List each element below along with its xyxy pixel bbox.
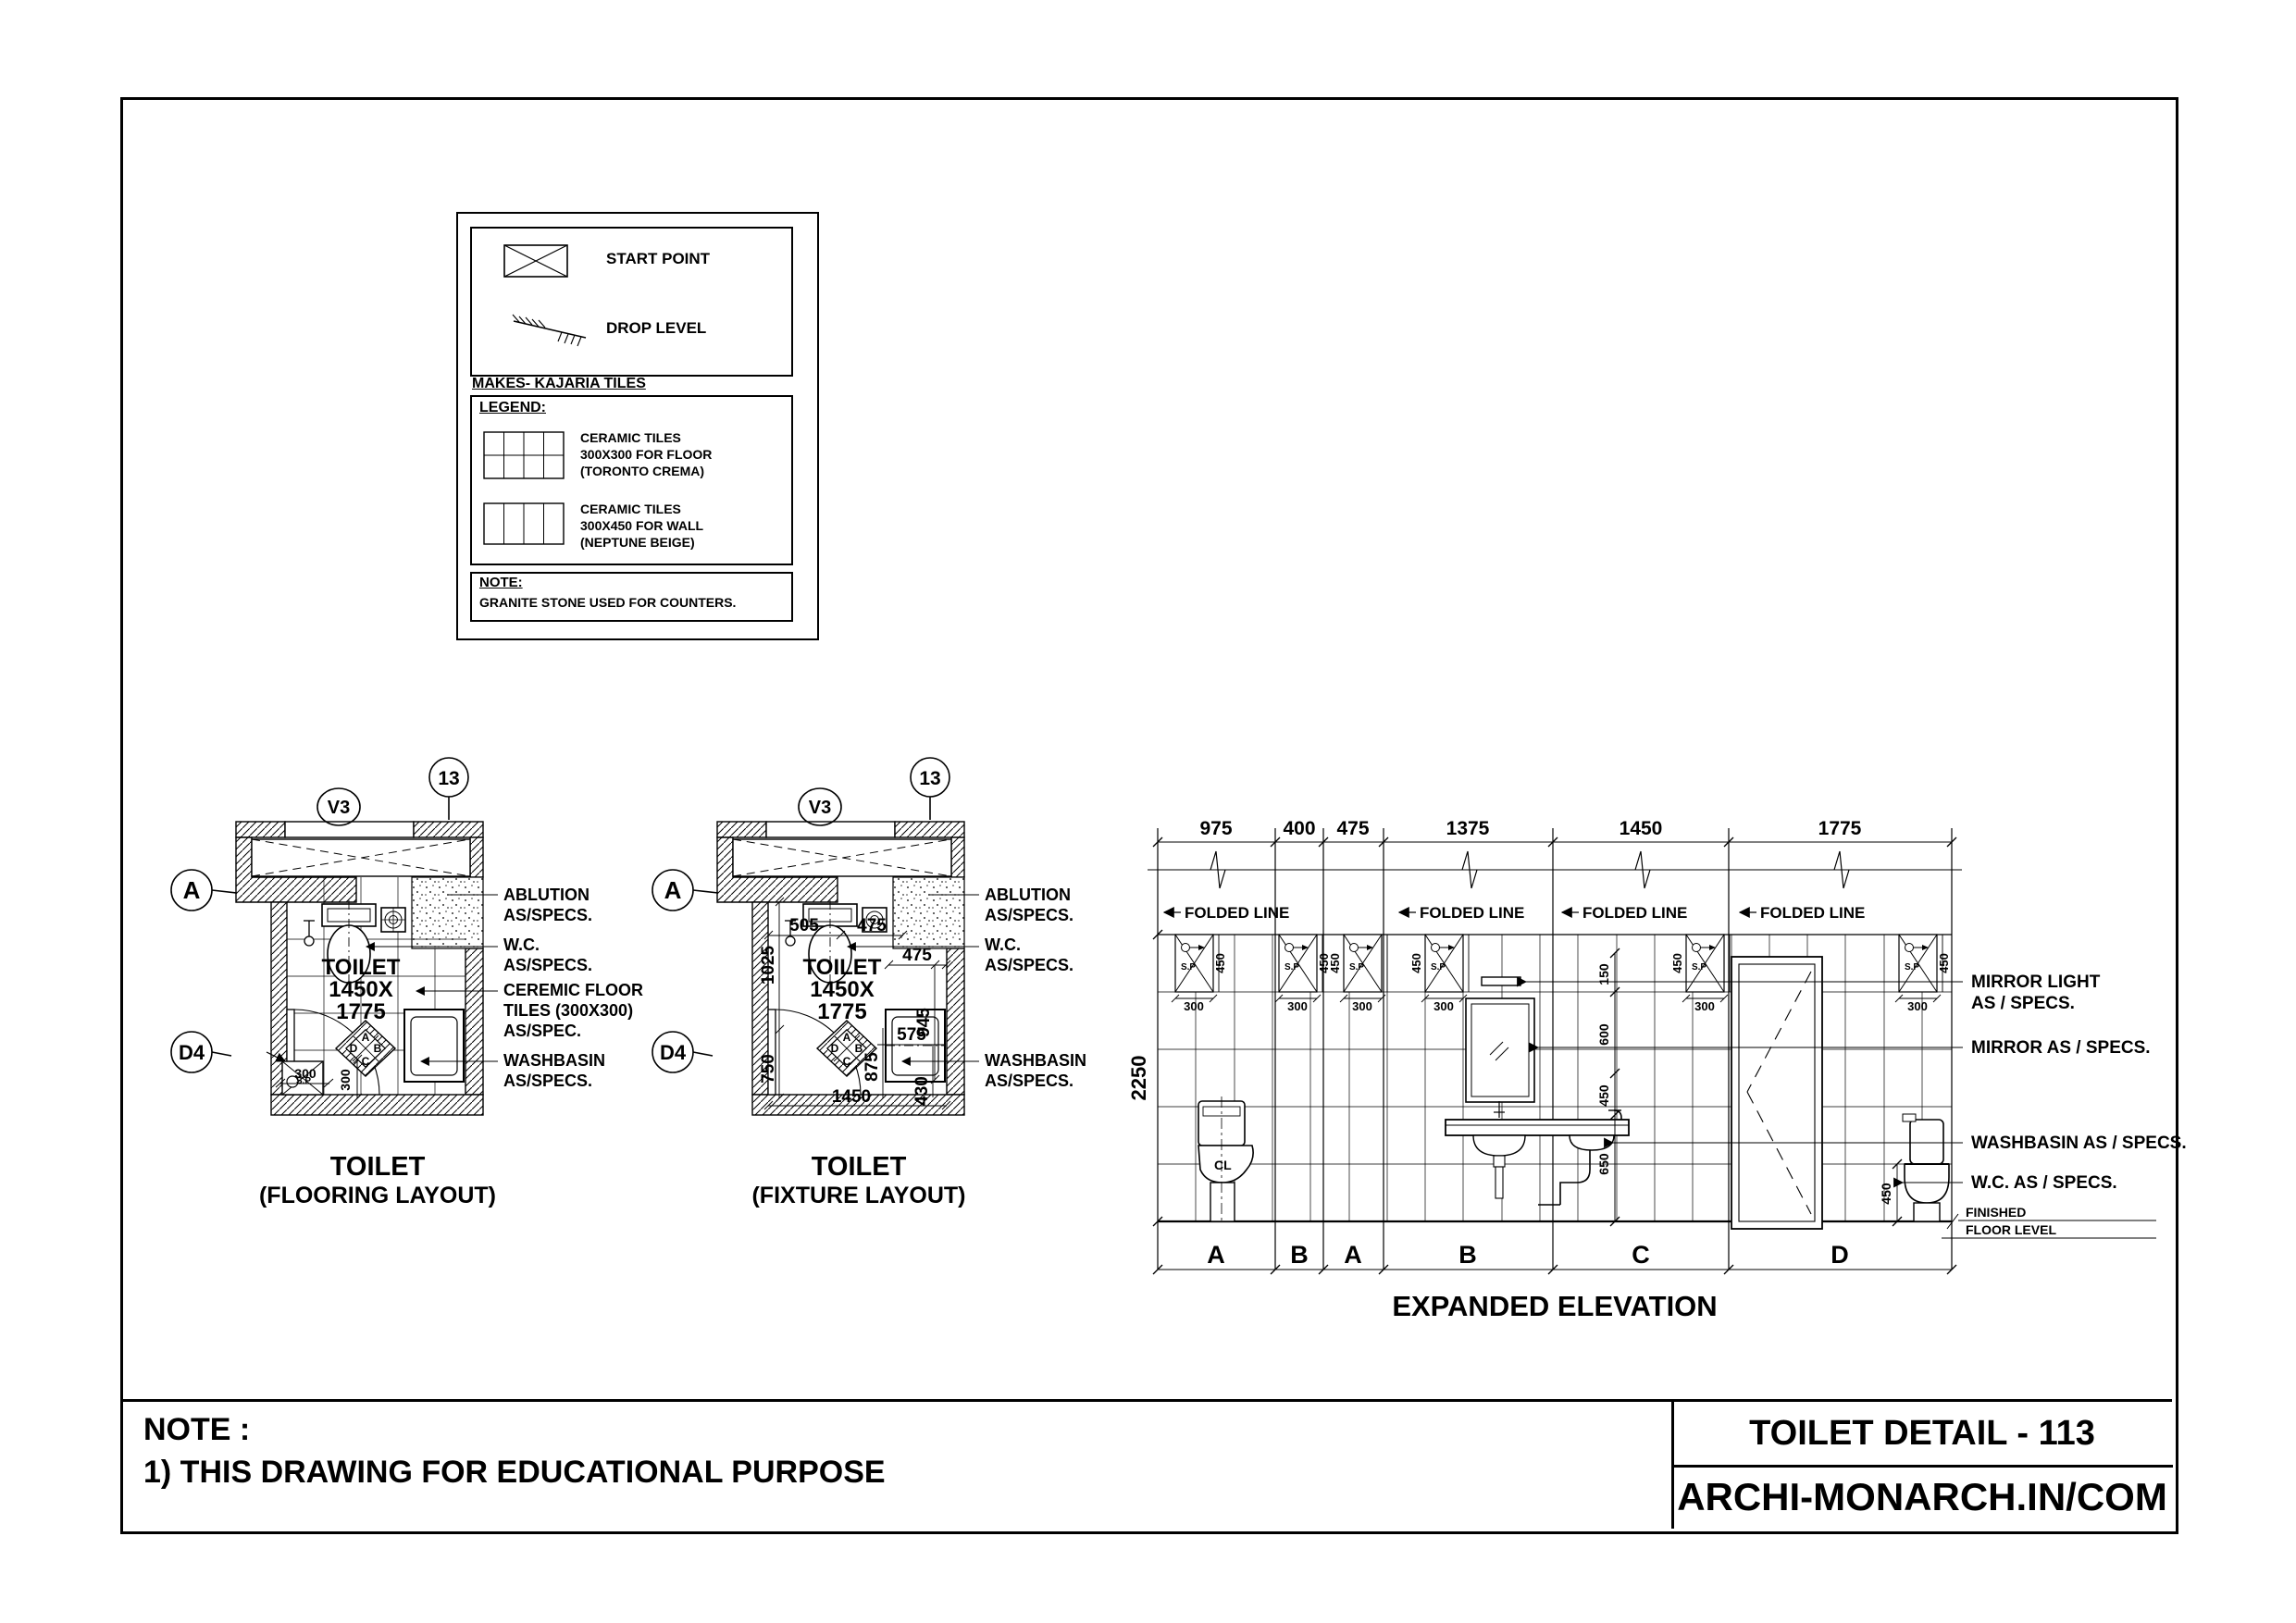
plan1-ablution-area <box>412 877 483 948</box>
sp-label-6: S.P <box>1905 962 1919 973</box>
sp-label-2: S.P <box>1285 962 1299 973</box>
elev-rdim-450: 450 <box>1596 1084 1611 1107</box>
wall-tile-text: CERAMIC TILES 300X450 FOR WALL (NEPTUNE … <box>580 501 703 551</box>
plan1-slab-over <box>252 839 470 876</box>
elev-lbl-wc: W.C. AS / SPECS. <box>1971 1173 2117 1193</box>
floor-tile-line2: 300X300 FOR FLOOR <box>580 446 712 463</box>
elev-lbl-mirror: MIRROR AS / SPECS. <box>1971 1038 2151 1058</box>
plan2-room-line1: TOILET <box>803 955 882 980</box>
plan2-marker-d4: D4 <box>660 1041 687 1064</box>
plan2-room-line2: 1450X <box>810 977 874 1002</box>
plan2-dim-1025: 1025 <box>759 945 778 985</box>
start-point-icon <box>503 243 571 280</box>
elev-wc-front <box>1903 1114 1949 1221</box>
folded-line-4: FOLDED LINE <box>1760 904 1865 922</box>
elev-lbl-washbasin: WASHBASIN AS / SPECS. <box>1971 1134 2187 1153</box>
sp-450-5: 450 <box>1670 953 1684 973</box>
plan1-room-line1: TOILET <box>322 955 401 980</box>
sp-450-1: 450 <box>1213 953 1227 973</box>
plan2-title-line1: TOILET <box>812 1152 907 1182</box>
plan1-lbl-ablution2: AS/SPECS. <box>503 906 592 924</box>
compass-c: C <box>362 1055 370 1068</box>
note-label: NOTE : <box>143 1412 250 1448</box>
plan1-marker-d4: D4 <box>179 1041 205 1064</box>
plan1-lbl-wc2: AS/SPECS. <box>503 956 592 974</box>
wall-tile-line2: 300X450 FOR WALL <box>580 517 703 534</box>
elev-boundaries <box>1158 828 1952 1270</box>
elev-mirror <box>1466 998 1534 1102</box>
wall-tile-icon <box>483 502 566 549</box>
plan2-marker-v3: V3 <box>809 798 831 818</box>
compass-c: C <box>843 1055 851 1068</box>
plan2-room-line3: 1775 <box>817 999 866 1024</box>
elev-dim-1775: 1775 <box>1818 818 1862 839</box>
floor-tile-icon <box>483 431 566 483</box>
elev-grid-frame <box>1158 935 1952 1221</box>
folded-line-3: FOLDED LINE <box>1582 904 1687 922</box>
plan2-dim-750: 750 <box>759 1054 778 1084</box>
elev-wc-450: 450 <box>1879 1183 1893 1205</box>
plan1-title-line2: (FLOORING LAYOUT) <box>259 1183 496 1208</box>
plan2-lbl-wb2: AS/SPECS. <box>985 1072 1074 1090</box>
plan1-dim-300v: 300 <box>338 1069 353 1091</box>
legend-heading: LEGEND: <box>479 400 546 416</box>
plan1-ablution-tap <box>304 921 315 946</box>
elev-section-a1: A <box>1207 1241 1225 1269</box>
footer-divider <box>123 1399 2172 1402</box>
sp-label-5: S.P <box>1692 962 1706 973</box>
elev-wc-cl: CL <box>1214 1158 1232 1172</box>
plan1-washbasin-counter <box>404 1010 464 1082</box>
legend-note-text: GRANITE STONE USED FOR COUNTERS. <box>479 595 736 610</box>
plan1-lbl-tiles3: AS/SPEC. <box>503 1022 581 1040</box>
plan2-lbl-wc2: AS/SPECS. <box>985 956 1074 974</box>
wall-tile-line1: CERAMIC TILES <box>580 501 703 517</box>
sp-450-3: 450 <box>1328 953 1342 973</box>
titleblock-horizontal-divider <box>1671 1465 2173 1468</box>
wall-tile-line3: (NEPTUNE BEIGE) <box>580 534 703 551</box>
compass-b: B <box>374 1042 382 1055</box>
sp-label-3: S.P <box>1349 962 1364 973</box>
compass-a: A <box>843 1031 851 1044</box>
expanded-elevation: 975 400 475 1375 1450 1775 FOLDED LINE F… <box>1111 796 2203 1332</box>
elev-section-b1: B <box>1290 1241 1309 1269</box>
note-text: 1) THIS DRAWING FOR EDUCATIONAL PURPOSE <box>143 1455 886 1491</box>
plan1-room-line2: 1450X <box>329 977 392 1002</box>
floor-tile-line1: CERAMIC TILES <box>580 429 712 446</box>
plan2-dim-505: 505 <box>789 916 819 935</box>
sp-450-4: 450 <box>1409 953 1423 973</box>
plan2-marker-a: A <box>664 876 682 904</box>
sp-300-1: 300 <box>1184 999 1204 1013</box>
sp-300-4: 300 <box>1433 999 1454 1013</box>
sp-450-6: 450 <box>1937 953 1951 973</box>
elev-ffl-line2: FLOOR LEVEL <box>1966 1222 2056 1237</box>
drop-level-icon <box>510 313 593 346</box>
compass-d: D <box>831 1042 839 1055</box>
elev-dim-1375: 1375 <box>1446 818 1490 839</box>
plan1-lbl-wc1: W.C. <box>503 935 540 954</box>
plan1-lbl-wb2: AS/SPECS. <box>503 1072 592 1090</box>
sp-300-6: 300 <box>1907 999 1928 1013</box>
folded-line-1: FOLDED LINE <box>1185 904 1289 922</box>
plan2-lbl-wc1: W.C. <box>985 935 1021 954</box>
sp-label-4: S.P <box>1431 962 1446 973</box>
drawing-sheet: START POINT DROP LEVEL MAKES- KAJARIA TI… <box>0 0 2296 1623</box>
plan1-floor-trap-grate <box>381 908 405 932</box>
plan1-lbl-wb1: WASHBASIN <box>503 1051 605 1070</box>
sp-label-1: S.P <box>1181 962 1196 973</box>
legend-makes-label: MAKES- KAJARIA TILES <box>472 376 646 392</box>
plan1-dim-300h: 300 <box>294 1066 316 1081</box>
elev-dim-975: 975 <box>1199 818 1232 839</box>
floor-tile-text: CERAMIC TILES 300X300 FOR FLOOR (TORONTO… <box>580 429 712 479</box>
plan2-ablution-area <box>893 877 964 948</box>
legend-note-label: NOTE: <box>479 575 523 590</box>
plan1-lbl-tiles2: TILES (300X300) <box>503 1001 633 1020</box>
plan2-dim-875: 875 <box>863 1052 882 1082</box>
sp-300-5: 300 <box>1694 999 1715 1013</box>
plan2-slab-over <box>733 839 951 876</box>
elev-section-b2: B <box>1458 1241 1477 1269</box>
plan2-lbl-ablution1: ABLUTION <box>985 886 1071 904</box>
plan1-compass: A B C D <box>336 1021 395 1076</box>
elev-section-c: C <box>1632 1241 1650 1269</box>
plan2-dim-430: 430 <box>912 1076 932 1106</box>
plan2-marker-13: 13 <box>919 768 940 789</box>
plan2-lbl-wb1: WASHBASIN <box>985 1051 1086 1070</box>
plan2-dim-1450: 1450 <box>832 1087 871 1107</box>
drawing-title: TOILET DETAIL - 113 <box>1671 1414 2173 1454</box>
elev-rdim-650: 650 <box>1596 1153 1611 1175</box>
legend-start-point-label: START POINT <box>606 250 710 268</box>
legend-drop-level-label: DROP LEVEL <box>606 319 706 338</box>
elev-door <box>1731 957 1822 1229</box>
plan2-title-line2: (FIXTURE LAYOUT) <box>751 1183 965 1208</box>
sp-300-2: 300 <box>1287 999 1308 1013</box>
elev-rdim-600: 600 <box>1596 1023 1611 1046</box>
elev-counter <box>1446 1101 1629 1205</box>
elev-section-d: D <box>1831 1241 1849 1269</box>
elev-ffl-line1: FINISHED <box>1966 1205 2026 1220</box>
compass-a: A <box>362 1031 370 1044</box>
plan1-marker-13: 13 <box>438 768 459 789</box>
website-link[interactable]: ARCHI-MONARCH.IN/COM <box>1671 1475 2173 1519</box>
plan1-lbl-ablution1: ABLUTION <box>503 886 590 904</box>
elev-fold-line <box>1148 851 1962 888</box>
elev-mirror-light <box>1482 977 1520 985</box>
plan2-dim-475niche: 475 <box>902 946 932 965</box>
elev-section-a2: A <box>1344 1241 1362 1269</box>
elev-tile-grid <box>1158 935 1952 1221</box>
elev-dim-1450: 1450 <box>1620 818 1663 839</box>
elev-folded-labels: FOLDED LINE FOLDED LINE FOLDED LINE FOLD… <box>1164 904 1865 922</box>
elev-dim-475: 475 <box>1336 818 1369 839</box>
floor-tile-line3: (TORONTO CREMA) <box>580 463 712 479</box>
elev-lbl-mirror-light2: AS / SPECS. <box>1971 994 2075 1013</box>
elev-dim-400: 400 <box>1283 818 1315 839</box>
plan2-dim-475top: 475 <box>857 916 887 935</box>
elevation-title: EXPANDED ELEVATION <box>1392 1290 1717 1322</box>
plan1-marker-v3: V3 <box>328 798 350 818</box>
sp-300-3: 300 <box>1352 999 1372 1013</box>
plan2-dim-575: 575 <box>897 1025 926 1045</box>
compass-d: D <box>350 1042 358 1055</box>
elev-height-2250: 2250 <box>1127 1056 1150 1101</box>
elev-lbl-mirror-light1: MIRROR LIGHT <box>1971 973 2101 992</box>
plan2-lbl-ablution2: AS/SPECS. <box>985 906 1074 924</box>
plan1-title-line1: TOILET <box>330 1152 426 1182</box>
folded-line-2: FOLDED LINE <box>1420 904 1524 922</box>
plan1-room-line3: 1775 <box>336 999 385 1024</box>
plan1-marker-a: A <box>183 876 201 904</box>
